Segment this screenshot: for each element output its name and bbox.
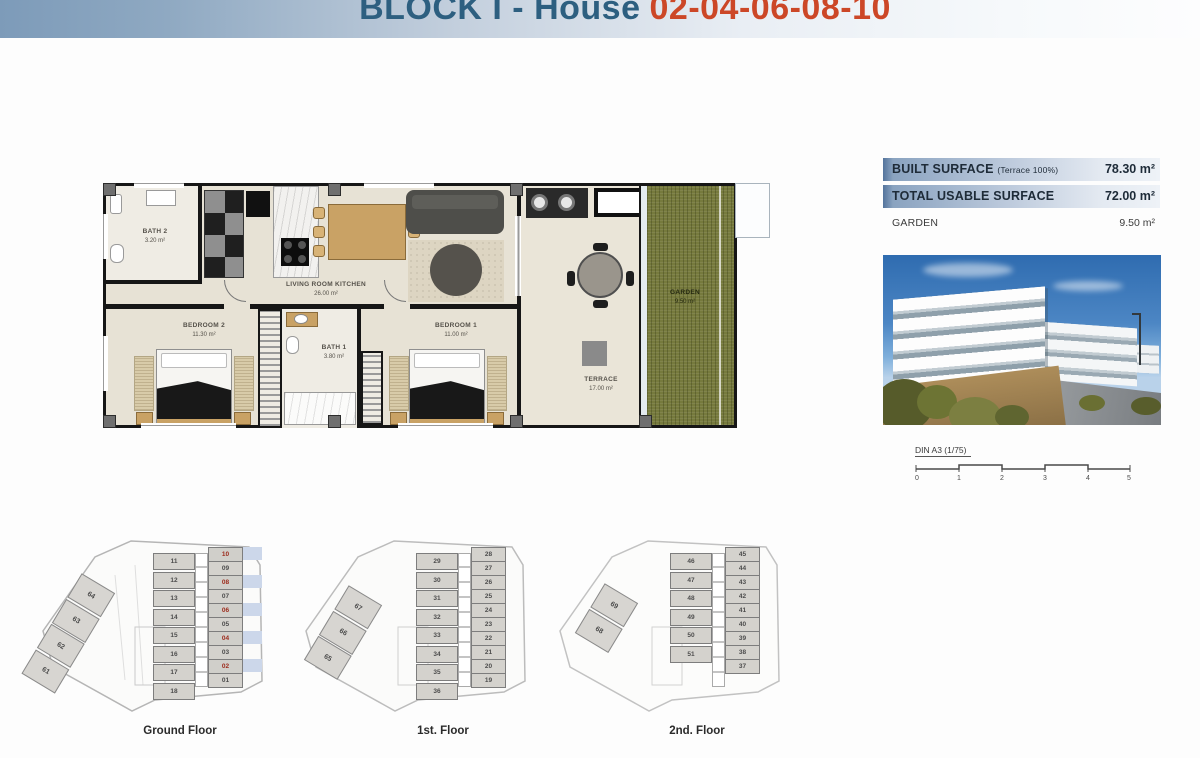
unit-45: 45 (725, 547, 760, 562)
unit-51: 51 (670, 646, 712, 663)
bedroom2-carpet (134, 356, 154, 411)
door-arc (384, 280, 406, 302)
pillar (510, 415, 523, 428)
bush (1079, 395, 1105, 411)
svg-text:2: 2 (1000, 475, 1004, 481)
unit-row-24: 24 (471, 603, 525, 616)
unit-row-38: 38 (725, 645, 779, 658)
unit-46: 46 (670, 553, 712, 570)
unit-row-19: 19 (471, 673, 525, 686)
unit-row-04: 04 (208, 631, 262, 644)
unit-row-39: 39 (725, 631, 779, 644)
door-gap (384, 304, 410, 309)
scale-bar: DIN A3 (1/75) 012 345 (915, 440, 1131, 481)
unit-row-09: 09 (208, 561, 262, 574)
unit-24: 24 (471, 603, 506, 618)
wardrobe (258, 309, 282, 428)
bedroom1-bed (409, 349, 485, 425)
unit-row-28: 28 (471, 547, 525, 560)
dining-chair (313, 207, 325, 219)
usable-surface-value: 72.00 m² (1105, 189, 1155, 203)
terrace-table (577, 252, 623, 298)
unit-26: 26 (471, 575, 506, 590)
unit-row-44: 44 (725, 561, 779, 574)
unit-48: 48 (670, 590, 712, 607)
dining-table (328, 204, 406, 260)
garden-surface-row: GARDEN 9.50 m² (883, 212, 1160, 235)
laundry-unit (526, 188, 588, 218)
unit-19: 19 (471, 673, 506, 688)
elevator-core (458, 553, 471, 687)
built-surface-value: 78.30 m² (1105, 162, 1155, 176)
unit-03: 03 (208, 645, 243, 660)
unit-row-41: 41 (725, 603, 779, 616)
unit-row-01: 01 (208, 673, 262, 686)
unit-44: 44 (725, 561, 760, 576)
unit-07: 07 (208, 589, 243, 604)
bath1-sink (294, 314, 308, 324)
bath1-label: BATH 1 3.80 m² (311, 344, 357, 361)
unit-20: 20 (471, 659, 506, 674)
pillar (639, 415, 652, 428)
window (101, 214, 108, 259)
unit-25: 25 (471, 589, 506, 604)
bush (995, 405, 1029, 425)
bedroom1-carpet (389, 356, 409, 411)
usable-surface-row: TOTAL USABLE SURFACE 72.00 m² (883, 185, 1160, 208)
bedroom2-carpet (234, 356, 254, 411)
unit-row-08: 08 (208, 575, 262, 588)
unit-row-27: 27 (471, 561, 525, 574)
plan-sheet-page: BLOCK I - House02-04-06-08-10 BATH 2 3.2… (0, 0, 1200, 758)
bush (1131, 397, 1161, 415)
dining-chair (313, 245, 325, 257)
unit-35: 35 (416, 664, 458, 681)
plan-exterior-niche (735, 183, 770, 238)
unit-31: 31 (416, 590, 458, 607)
kitchen-appliance-black (246, 191, 270, 217)
unit-09: 09 (208, 561, 243, 576)
terrace-chair (593, 300, 608, 308)
right-column: 454443424140393837 (725, 547, 779, 673)
unit-23: 23 (471, 617, 506, 632)
unit-50: 50 (670, 627, 712, 644)
garden-path (639, 186, 647, 425)
window (364, 181, 434, 188)
garden-label: GARDEN 9.50 m² (655, 289, 715, 306)
window (398, 423, 493, 430)
unit-36: 36 (416, 683, 458, 700)
svg-text:3: 3 (1043, 475, 1047, 481)
bath1-toilet (286, 336, 299, 354)
wardrobe (361, 351, 383, 425)
unit-30: 30 (416, 572, 458, 589)
hall-closet (204, 190, 244, 278)
pillar (103, 415, 116, 428)
scale-label: DIN A3 (1/75) (915, 445, 971, 457)
unit-row-03: 03 (208, 645, 262, 658)
unit-18: 18 (153, 683, 195, 700)
unit-row-21: 21 (471, 645, 525, 658)
unit-05: 05 (208, 617, 243, 632)
unit-47: 47 (670, 572, 712, 589)
pillar (328, 415, 341, 428)
window (101, 336, 108, 391)
unit-21: 21 (471, 645, 506, 660)
unit-40: 40 (725, 617, 760, 632)
unit-27: 27 (471, 561, 506, 576)
sofa (406, 190, 504, 234)
unit-01: 01 (208, 673, 243, 688)
unit-04: 04 (208, 631, 243, 646)
door-gap (224, 304, 250, 309)
right-column: 28272625242322212019 (471, 547, 525, 687)
unit-16: 16 (153, 646, 195, 663)
built-surface-row: BUILT SURFACE (Terrace 100%) 78.30 m² (883, 158, 1160, 181)
svg-text:1: 1 (957, 475, 961, 481)
nightstand (234, 412, 251, 425)
unit-37: 37 (725, 659, 760, 674)
unit-row-42: 42 (725, 589, 779, 602)
bath1-shower (284, 392, 356, 425)
bedroom2-bed (156, 349, 232, 425)
unit-row-20: 20 (471, 659, 525, 672)
second-floor-plan: 6968 464748495051 454443424140393837 2nd… (552, 535, 802, 737)
unit-row-07: 07 (208, 589, 262, 602)
terrace-label: TERRACE 17.00 m² (570, 376, 632, 393)
unit-02: 02 (208, 659, 243, 674)
unit-17: 17 (153, 664, 195, 681)
unit-row-40: 40 (725, 617, 779, 630)
cloud (1053, 281, 1123, 291)
unit-29: 29 (416, 553, 458, 570)
built-surface-label: BUILT SURFACE (892, 162, 994, 176)
round-rug (430, 244, 482, 296)
unit-row-06: 06 (208, 603, 262, 616)
unit-41: 41 (725, 603, 760, 618)
unit-12: 12 (153, 572, 195, 589)
pillar (510, 183, 523, 196)
unit-row-22: 22 (471, 631, 525, 644)
svg-text:5: 5 (1127, 475, 1131, 481)
unit-row-25: 25 (471, 589, 525, 602)
garden-area: GARDEN 9.50 m² (647, 186, 734, 425)
unit-49: 49 (670, 609, 712, 626)
bedroom1-carpet (487, 356, 507, 411)
svg-text:0: 0 (915, 475, 919, 481)
unit-15: 15 (153, 627, 195, 644)
unit-row-02: 02 (208, 659, 262, 672)
unit-row-05: 05 (208, 617, 262, 630)
floor-label: 1st. Floor (417, 725, 469, 737)
door-arc (224, 280, 246, 302)
storage-box (594, 188, 644, 217)
unit-row-26: 26 (471, 575, 525, 588)
bedroom2-label: BEDROOM 2 11.30 m² (169, 322, 239, 339)
bath2-label: BATH 2 3.20 m² (124, 228, 186, 245)
bath2-shelf (146, 190, 176, 206)
built-surface-sublabel: (Terrace 100%) (997, 165, 1058, 175)
mid-column: 1112131415161718 (153, 553, 193, 701)
unit-32: 32 (416, 609, 458, 626)
unit-33: 33 (416, 627, 458, 644)
unit-22: 22 (471, 631, 506, 646)
main-floor-plan: BATH 2 3.20 m² LIVING ROOM KITCHEN 26.00… (103, 183, 737, 428)
unit-06: 06 (208, 603, 243, 618)
scale-ruler: 012 345 (915, 461, 1131, 481)
bath2-toilet (110, 244, 124, 263)
terrace-chair (626, 271, 634, 286)
floor-label: Ground Floor (143, 725, 216, 737)
terrace-planter (582, 341, 607, 366)
floor-label: 2nd. Floor (669, 725, 725, 737)
unit-row-45: 45 (725, 547, 779, 560)
building-photo (883, 255, 1161, 425)
window (134, 181, 184, 188)
kitchen-stove (281, 238, 309, 266)
title-block-text: BLOCK I - House (359, 0, 640, 27)
unit-08: 08 (208, 575, 243, 590)
usable-surface-label: TOTAL USABLE SURFACE (892, 189, 1054, 203)
elevator-core (712, 553, 725, 687)
page-title: BLOCK I - House02-04-06-08-10 (50, 0, 1200, 25)
cloud (923, 263, 1013, 277)
unit-row-43: 43 (725, 575, 779, 588)
unit-row-10: 10 (208, 547, 262, 560)
terrace-chair (593, 243, 608, 251)
unit-11: 11 (153, 553, 195, 570)
dining-chair (313, 226, 325, 238)
bath2-sink (110, 194, 122, 214)
unit-14: 14 (153, 609, 195, 626)
terrace-chair (567, 271, 575, 286)
garden-surface-value: 9.50 m² (1119, 217, 1155, 229)
pillar (328, 183, 341, 196)
first-floor-plan: 676665 2930313233343536 2827262524232221… (298, 535, 548, 737)
pillar (103, 183, 116, 196)
unit-39: 39 (725, 631, 760, 646)
unit-10: 10 (208, 547, 243, 562)
unit-28: 28 (471, 547, 506, 562)
right-column: 10090807060504030201 (208, 547, 262, 687)
street-lamp (1139, 313, 1141, 365)
title-bar: BLOCK I - House02-04-06-08-10 (0, 0, 1200, 38)
unit-43: 43 (725, 575, 760, 590)
mid-column: 464748495051 (670, 553, 710, 664)
mid-column: 2930313233343536 (416, 553, 456, 701)
elevator-core (195, 553, 208, 687)
unit-13: 13 (153, 590, 195, 607)
garden-surface-label: GARDEN (892, 217, 938, 229)
window (141, 423, 236, 430)
svg-text:4: 4 (1086, 475, 1090, 481)
unit-42: 42 (725, 589, 760, 604)
bedroom1-label: BEDROOM 1 11.00 m² (421, 322, 491, 339)
unit-34: 34 (416, 646, 458, 663)
title-house-numbers: 02-04-06-08-10 (650, 0, 891, 27)
unit-row-37: 37 (725, 659, 779, 672)
surface-table: BUILT SURFACE (Terrace 100%) 78.30 m² TO… (883, 158, 1160, 239)
unit-38: 38 (725, 645, 760, 660)
living-room-label: LIVING ROOM KITCHEN 26.00 m² (254, 281, 398, 298)
ground-floor-plan: 64636261 1112131415161718 10090807060504… (35, 535, 285, 737)
unit-row-23: 23 (471, 617, 525, 630)
